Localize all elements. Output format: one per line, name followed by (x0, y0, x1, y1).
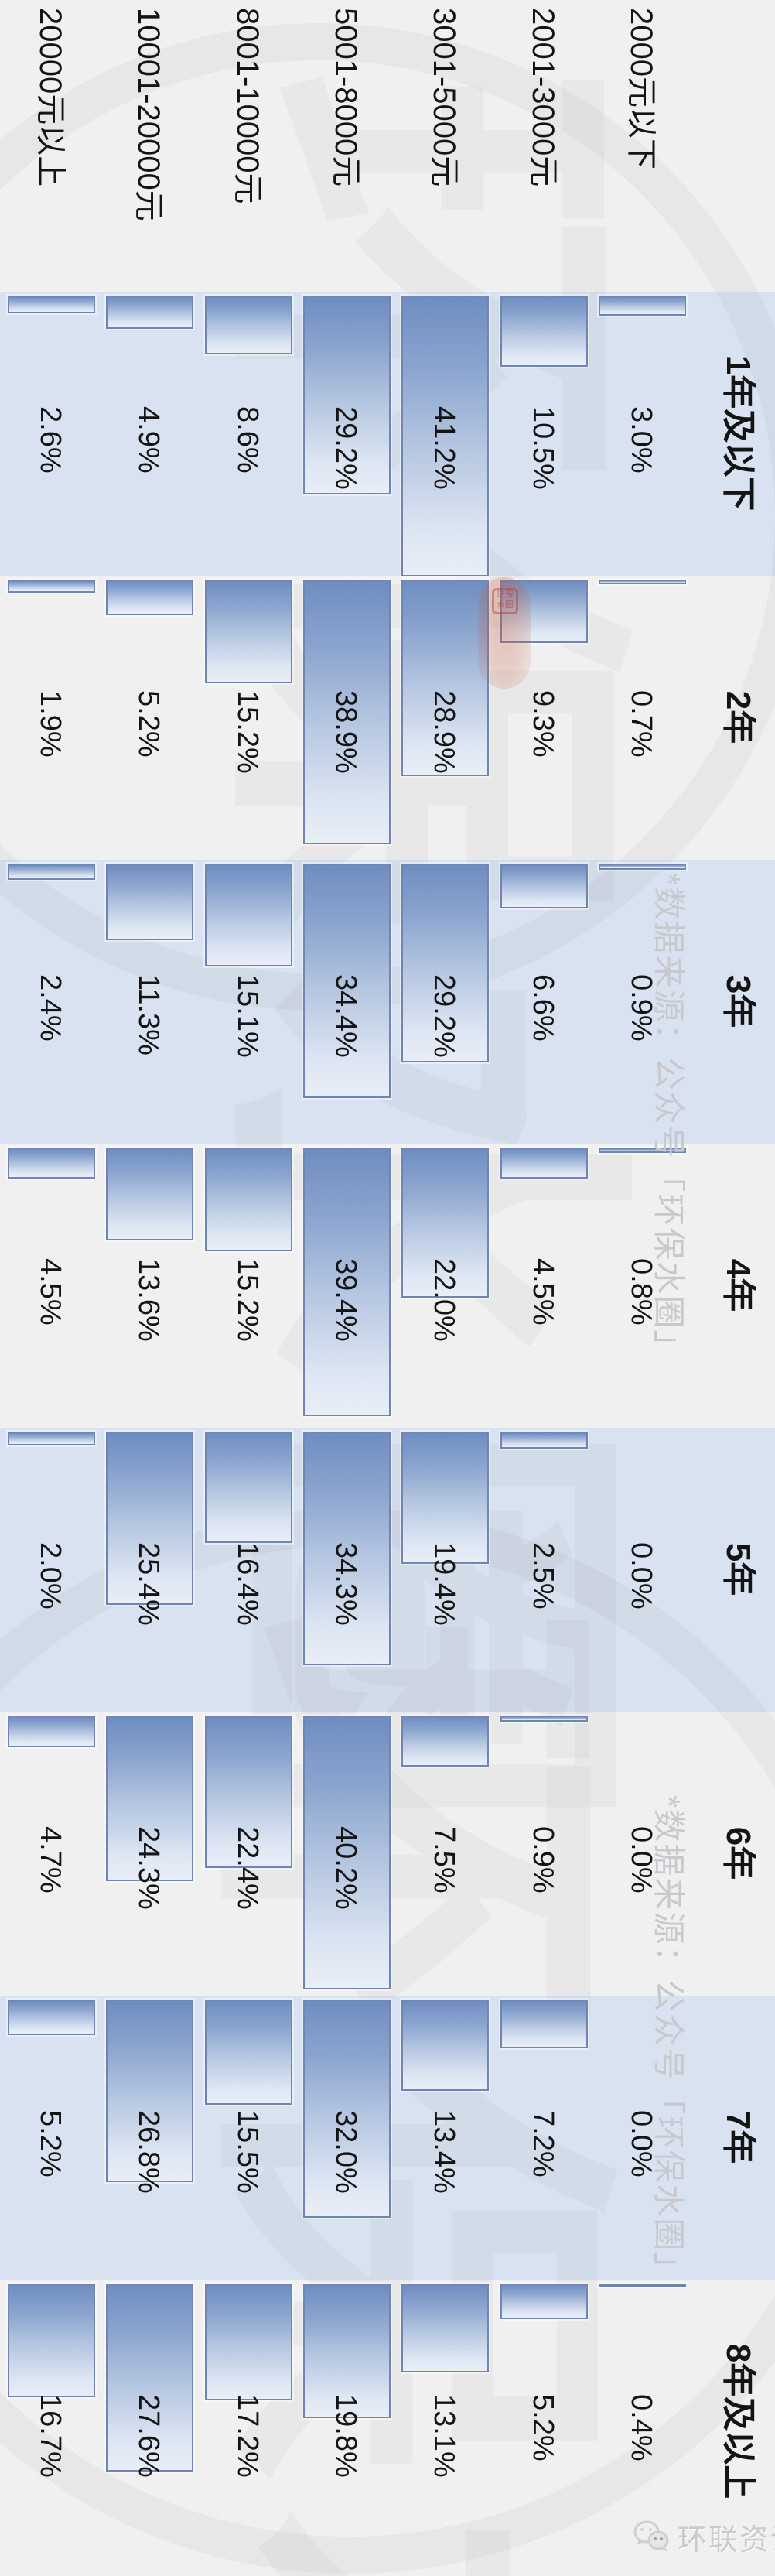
year-axis-label: 3年 (713, 860, 763, 1143)
percent-label: 22.0% (398, 1258, 489, 1342)
percent-label: 5.2% (103, 690, 193, 758)
bar-2年-8001-10000元 (205, 580, 292, 683)
data-source-watermark: *数据来源：公众号「环保水圈」 (647, 873, 695, 1363)
percent-label: 19.4% (398, 1542, 489, 1626)
bar-3年-10001-20000元 (106, 864, 193, 940)
percent-label: 4.9% (103, 406, 193, 474)
data-source-watermark: *数据来源：公众号「环保水圈」 (647, 1795, 695, 2286)
year-axis-label: 5年 (713, 1428, 763, 1711)
percent-label: 27.6% (103, 2394, 193, 2478)
bar-3年-8001-10000元 (205, 864, 292, 966)
footer-account-name: 环联资讯 (678, 2516, 775, 2558)
bar-7年-3001-5000元 (401, 2000, 489, 2091)
red-seal-stamp-icon: 环保水圈 (478, 577, 531, 689)
bar-5年-2001-3000元 (500, 1432, 588, 1449)
bar-1年及以下-2000元以下 (599, 296, 686, 316)
percent-label: 17.2% (202, 2394, 292, 2478)
percent-label: 2.6% (5, 406, 95, 474)
rotated-chart-screenshot: 环保水圈 环保水圈 1年及以下3.0%10.5%41.2%29.2%8.6%4.… (0, 0, 775, 2576)
percent-label: 15.2% (202, 1258, 292, 1342)
percent-label: 4.5% (5, 1258, 95, 1326)
percent-label: 19.8% (300, 2394, 391, 2478)
bar-1年及以下-8001-10000元 (205, 296, 292, 354)
bar-5年-20000元以上 (8, 1432, 95, 1445)
percent-label: 32.0% (300, 2110, 391, 2194)
percent-label: 16.4% (202, 1542, 292, 1626)
bar-3年-2001-3000元 (500, 864, 588, 908)
percent-label: 10.5% (497, 406, 588, 490)
percent-label: 22.4% (202, 1826, 292, 1910)
year-axis-label: 7年 (713, 1996, 763, 2279)
percent-label: 40.2% (300, 1826, 391, 1910)
year-axis-label: 1年及以下 (713, 292, 763, 575)
bar-8年及以上-3001-5000元 (401, 2284, 489, 2372)
percent-label: 15.5% (202, 2110, 292, 2194)
percent-label: 39.4% (300, 1258, 391, 1342)
percent-label: 0.9% (497, 1826, 588, 1894)
bar-7年-8001-10000元 (205, 2000, 292, 2105)
percent-label: 11.3% (103, 974, 193, 1055)
percent-label: 15.1% (202, 974, 292, 1058)
percent-label: 16.7% (5, 2394, 95, 2478)
percent-label: 4.7% (5, 1826, 95, 1894)
bar-5年-8001-10000元 (205, 1432, 292, 1543)
salary-axis-label: 8001-10000元 (202, 8, 292, 204)
percent-label: 7.2% (497, 2110, 588, 2177)
salary-axis-label: 20000元以上 (5, 8, 95, 186)
bar-8年及以上-2001-3000元 (500, 2284, 588, 2319)
percent-label: 5.2% (5, 2110, 95, 2177)
bar-7年-2001-3000元 (500, 2000, 588, 2048)
salary-axis-label: 10001-20000元 (103, 8, 193, 221)
bar-4年-10001-20000元 (106, 1148, 193, 1240)
percent-label: 41.2% (398, 406, 489, 490)
salary-axis-label: 2001-3000元 (497, 8, 588, 186)
bar-6年-2001-3000元 (500, 1716, 588, 1722)
percent-label: 25.4% (103, 1542, 193, 1626)
percent-label: 1.9% (5, 690, 95, 758)
percent-label: 0.4% (596, 2394, 686, 2461)
percent-label: 13.1% (398, 2394, 489, 2478)
bar-2年-20000元以上 (8, 580, 95, 593)
percent-label: 7.5% (398, 1826, 489, 1894)
bar-4年-20000元以上 (8, 1148, 95, 1179)
bar-1年及以下-2001-3000元 (500, 296, 588, 367)
percent-label: 29.2% (300, 406, 391, 490)
percent-label: 3.0% (596, 406, 686, 474)
percent-label: 34.4% (300, 974, 391, 1058)
bar-1年及以下-20000元以上 (8, 296, 95, 313)
bar-7年-20000元以上 (8, 2000, 95, 2035)
percent-label: 2.5% (497, 1542, 588, 1610)
percent-label: 8.6% (202, 406, 292, 474)
salary-axis-label: 5001-8000元 (300, 8, 391, 186)
bar-8年及以上-8001-10000元 (205, 2284, 292, 2400)
year-axis-label: 4年 (713, 1144, 763, 1427)
percent-label: 24.3% (103, 1826, 193, 1910)
bar-3年-2000元以下 (599, 864, 686, 870)
percent-label: 9.3% (497, 690, 588, 758)
salary-axis-label: 2000元以下 (596, 8, 686, 169)
percent-label: 28.9% (398, 690, 489, 774)
percent-label: 0.7% (596, 690, 686, 758)
red-seal-glyph: 环保水圈 (492, 588, 518, 614)
percent-label: 38.9% (300, 690, 391, 774)
percent-label: 26.8% (103, 2110, 193, 2194)
percent-label: 15.2% (202, 690, 292, 774)
salary-axis-label: 3001-5000元 (398, 8, 489, 186)
percent-label: 2.0% (5, 1542, 95, 1610)
percent-label: 13.6% (103, 1258, 193, 1342)
chart-canvas: 环保水圈 环保水圈 1年及以下3.0%10.5%41.2%29.2%8.6%4.… (0, 0, 775, 2576)
percent-label: 13.4% (398, 2110, 489, 2194)
bar-2年-10001-20000元 (106, 580, 193, 615)
percent-label: 6.6% (497, 974, 588, 1042)
bar-4年-2001-3000元 (500, 1148, 588, 1179)
footer-account-watermark: 环联资讯 (633, 2516, 775, 2557)
percent-label: 29.2% (398, 974, 489, 1058)
percent-label: 0.0% (596, 1542, 686, 1610)
wechat-icon (633, 2520, 670, 2554)
year-axis-label: 2年 (713, 576, 763, 859)
bar-4年-8001-10000元 (205, 1148, 292, 1251)
bar-6年-3001-5000元 (401, 1716, 489, 1767)
year-axis-label: 6年 (713, 1712, 763, 1995)
bar-3年-20000元以上 (8, 864, 95, 880)
percent-label: 4.5% (497, 1258, 588, 1326)
bar-1年及以下-10001-20000元 (106, 296, 193, 329)
percent-label: 5.2% (497, 2394, 588, 2461)
bar-2年-2000元以下 (599, 580, 686, 584)
percent-label: 34.3% (300, 1542, 391, 1626)
percent-label: 2.4% (5, 974, 95, 1042)
bar-8年及以上-20000元以上 (8, 2284, 95, 2397)
bar-6年-20000元以上 (8, 1716, 95, 1747)
